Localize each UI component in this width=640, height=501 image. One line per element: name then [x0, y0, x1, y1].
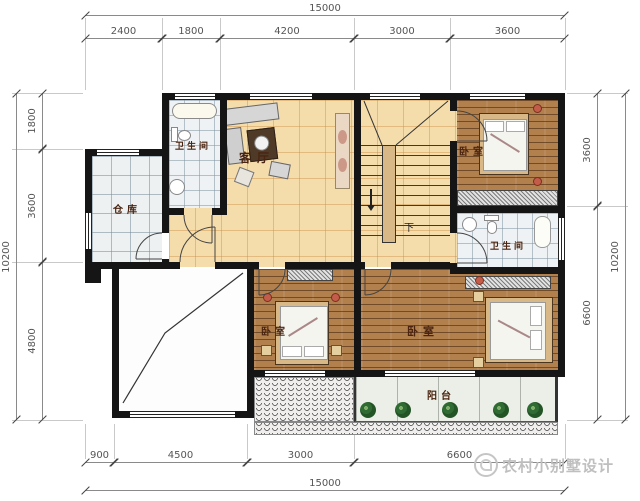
plant [360, 402, 376, 418]
dim-top-5: 3600 [450, 38, 565, 39]
dim-right-2: 6600 [597, 206, 598, 420]
wall [247, 370, 265, 377]
nightstand [331, 345, 342, 356]
pillow [506, 121, 525, 132]
window [370, 93, 420, 100]
nightstand [473, 357, 484, 368]
dim-left-total: 10200 [16, 93, 17, 420]
dim-label: 3000 [247, 450, 354, 461]
dim-right-1: 3600 [597, 93, 598, 206]
room-label-living: 客厅 [225, 149, 289, 166]
wall [247, 262, 254, 418]
stair-divider [382, 145, 396, 243]
room-label-bathroom-right: 卫生间 [479, 239, 537, 252]
stair-down-label: 下 [401, 219, 417, 234]
dim-label: 4200 [220, 26, 354, 37]
roof-tile-strip [254, 422, 558, 435]
window [265, 370, 325, 377]
wall [162, 208, 184, 215]
window [250, 93, 312, 100]
dim-top-4: 3000 [354, 38, 450, 39]
dim-bottom-total: 15000 [85, 490, 565, 491]
stool [533, 177, 542, 186]
room-label-bathroom-top: 卫生间 [165, 139, 221, 152]
window [175, 93, 215, 100]
wall [112, 262, 180, 269]
dim-label: 3600 [450, 26, 565, 37]
room-label-bedroom-small: 卧室 [255, 323, 295, 338]
wall [215, 262, 247, 269]
watermark-text: 农村小别墅设计 [502, 455, 614, 476]
stair-arrowhead [367, 205, 375, 211]
cabinet [335, 113, 350, 189]
extension-line [565, 18, 566, 90]
room-label-balcony: 阳台 [413, 387, 469, 402]
pillow [282, 346, 302, 357]
extension-line [12, 149, 83, 150]
plant [493, 402, 509, 418]
wall [450, 206, 565, 213]
dim-label: 4500 [114, 450, 247, 461]
window [470, 93, 525, 100]
room-label-bedroom-topright: 卧室 [451, 143, 495, 158]
wall [112, 411, 130, 418]
stair-arrow [370, 189, 372, 205]
floor-plan: 卫生间 仓库 客厅 卧室 卫生间 卧室 卧室 阳台 下 [85, 93, 565, 438]
pillow [530, 306, 542, 326]
stool [263, 293, 272, 302]
plant [442, 402, 458, 418]
dim-label: 1800 [162, 26, 220, 37]
wall [85, 269, 101, 283]
pillow [485, 121, 504, 132]
dim-left-1: 1800 [42, 93, 43, 149]
dim-bottom-1: 900 [85, 462, 114, 463]
extension-line [12, 93, 83, 94]
dim-label: 900 [85, 450, 114, 461]
dim-label: 15000 [85, 478, 565, 489]
garage-door [130, 411, 235, 418]
wall [391, 262, 450, 269]
dim-label: 2400 [85, 26, 162, 37]
wardrobe [287, 269, 333, 281]
pillow [530, 330, 542, 350]
dim-bottom-2: 4500 [114, 462, 247, 463]
sink [169, 179, 185, 195]
stool [533, 104, 542, 113]
room-label-bedroom-large: 卧室 [399, 323, 447, 339]
window [97, 149, 139, 156]
bathtub [172, 103, 217, 119]
dim-label: 3600 [27, 193, 38, 218]
stool [475, 276, 484, 285]
plant [395, 402, 411, 418]
nightstand [473, 291, 484, 302]
stool [234, 167, 255, 188]
dim-label: 6600 [582, 300, 593, 325]
wall [212, 208, 220, 215]
dim-left-2: 3600 [42, 149, 43, 262]
bed [485, 297, 553, 363]
wall [235, 411, 254, 418]
pillow [304, 346, 324, 357]
dim-top-total: 15000 [85, 15, 565, 16]
dim-label: 4800 [27, 328, 38, 353]
dim-left-3: 4800 [42, 262, 43, 420]
wardrobe [457, 190, 558, 206]
window [385, 370, 475, 377]
plant [527, 402, 543, 418]
dim-label: 1800 [27, 108, 38, 133]
dim-label: 10200 [1, 241, 12, 273]
stool [331, 293, 340, 302]
wall [450, 100, 457, 111]
sink [462, 217, 477, 232]
dim-top-3: 4200 [220, 38, 354, 39]
dim-label: 3600 [582, 137, 593, 162]
wall [285, 262, 365, 269]
room-label-storage: 仓库 [99, 201, 155, 216]
extension-line [12, 262, 83, 263]
dim-right-total: 10200 [625, 93, 626, 420]
dim-label: 15000 [85, 3, 565, 14]
watermark-logo-icon [474, 453, 498, 477]
dim-label: 3000 [354, 26, 450, 37]
window [558, 218, 565, 260]
floor-plan-page: 15000 2400 1800 4200 3000 3600 10200 180… [0, 0, 640, 501]
decor [338, 158, 347, 172]
decor [338, 130, 347, 144]
window [85, 213, 92, 249]
wall [354, 100, 361, 262]
wall [85, 149, 92, 269]
dim-top-1: 2400 [85, 38, 162, 39]
wall [354, 269, 361, 370]
roof-tile-hatch [254, 377, 354, 422]
dim-bottom-3: 3000 [247, 462, 354, 463]
dim-top-2: 1800 [162, 38, 220, 39]
wall [475, 370, 558, 377]
wall [325, 370, 385, 377]
extension-line [12, 420, 83, 421]
wall [450, 267, 565, 274]
dim-label: 10200 [610, 241, 621, 273]
watermark: 农村小别墅设计 [474, 453, 614, 477]
nightstand [261, 345, 272, 356]
toilet-bowl [487, 221, 497, 234]
garage-floor [119, 269, 247, 411]
wall [112, 262, 119, 418]
